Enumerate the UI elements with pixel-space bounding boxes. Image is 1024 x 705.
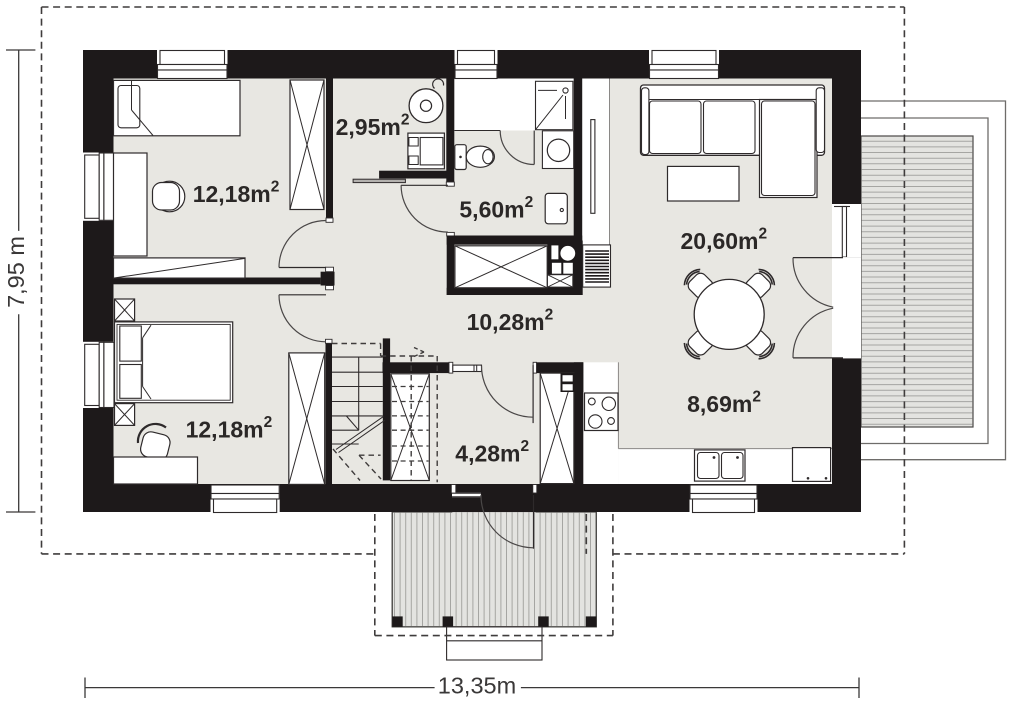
svg-text:4,28m2: 4,28m2 bbox=[455, 438, 529, 467]
svg-text:10,28m2: 10,28m2 bbox=[467, 306, 554, 335]
svg-text:20,60m2: 20,60m2 bbox=[681, 226, 768, 255]
svg-text:2,95m2: 2,95m2 bbox=[336, 112, 410, 141]
svg-text:12,18m2: 12,18m2 bbox=[193, 178, 280, 207]
svg-text:13,35m: 13,35m bbox=[438, 673, 516, 699]
svg-text:5,60m2: 5,60m2 bbox=[459, 194, 533, 223]
svg-text:8,69m2: 8,69m2 bbox=[687, 389, 761, 418]
svg-text:7,95 m: 7,95 m bbox=[3, 236, 29, 308]
svg-text:12,18m2: 12,18m2 bbox=[186, 414, 273, 443]
